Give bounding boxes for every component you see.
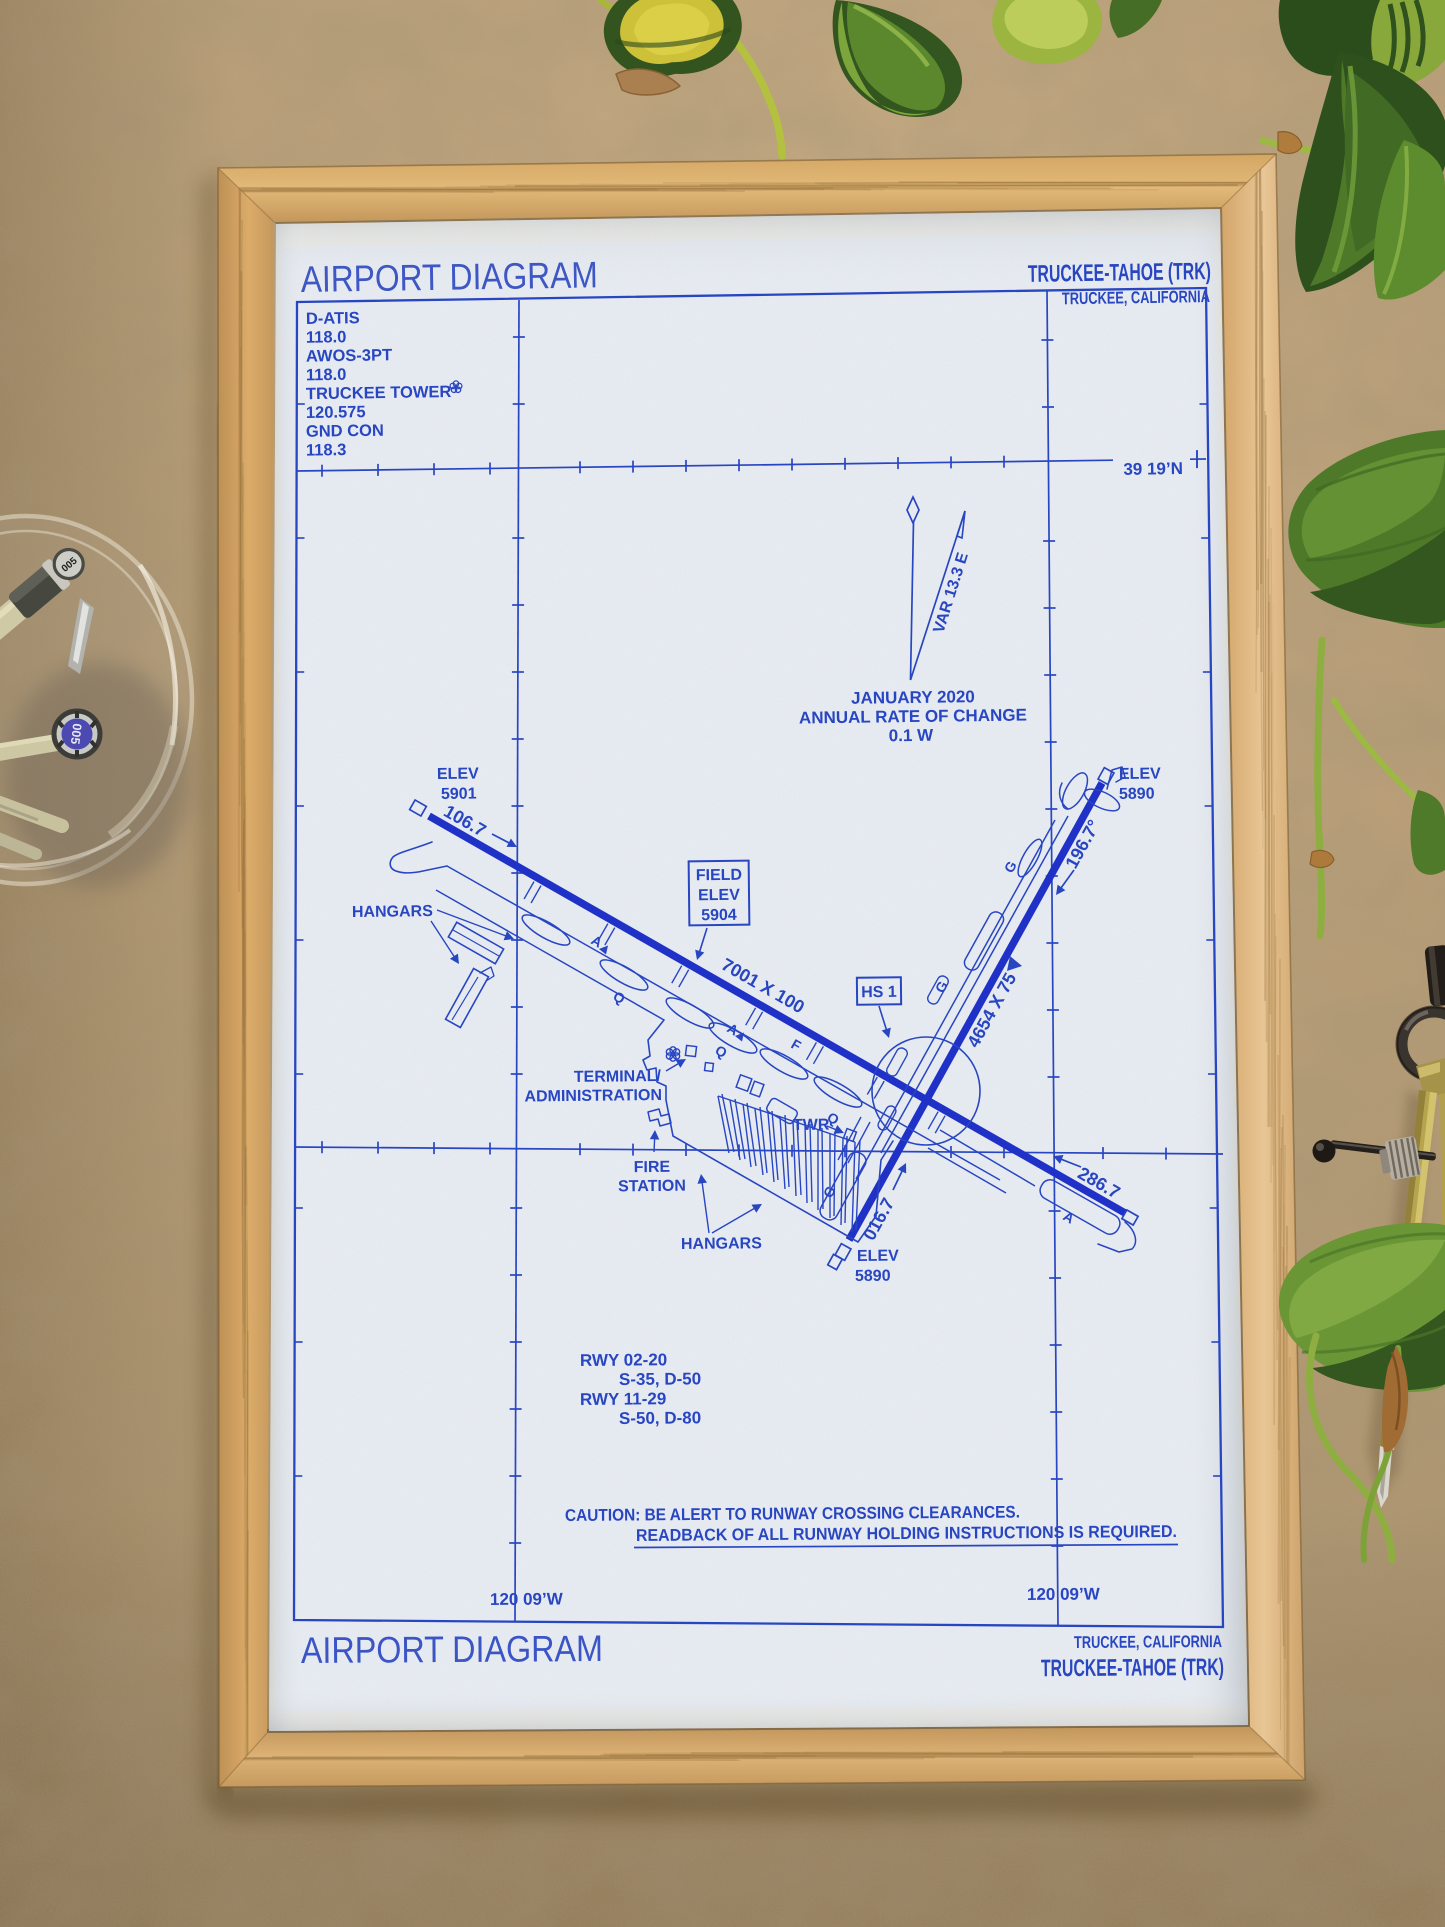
svg-text:ELEV: ELEV — [857, 1248, 899, 1265]
svg-text:AIRPORT DIAGRAM: AIRPORT DIAGRAM — [301, 1628, 603, 1671]
svg-text:ANNUAL RATE OF CHANGE: ANNUAL RATE OF CHANGE — [799, 706, 1027, 728]
svg-text:D-ATIS: D-ATIS — [306, 309, 360, 328]
svg-text:READBACK OF ALL RUNWAY HOLDING: READBACK OF ALL RUNWAY HOLDING INSTRUCTI… — [636, 1522, 1177, 1545]
svg-text:STATION: STATION — [618, 1178, 686, 1196]
svg-text:TWR: TWR — [793, 1117, 830, 1134]
svg-text:GND CON: GND CON — [306, 422, 384, 441]
svg-text:5890: 5890 — [1119, 786, 1155, 803]
svg-text:5901: 5901 — [441, 786, 477, 803]
svg-text:118.3: 118.3 — [306, 441, 347, 460]
svg-text:S-50, D-80: S-50, D-80 — [619, 1408, 701, 1428]
svg-text:5904: 5904 — [701, 907, 737, 924]
svg-text:HANGARS: HANGARS — [352, 903, 433, 921]
svg-text:FIRE: FIRE — [634, 1159, 671, 1176]
svg-text:S-35, D-50: S-35, D-50 — [619, 1369, 701, 1389]
svg-text:TRUCKEE-TAHOE (TRK): TRUCKEE-TAHOE (TRK) — [1028, 258, 1211, 288]
svg-text:AIRPORT DIAGRAM: AIRPORT DIAGRAM — [300, 254, 598, 300]
svg-text:TERMINAL/: TERMINAL/ — [574, 1068, 662, 1086]
svg-text:39 19’N: 39 19’N — [1123, 459, 1183, 479]
svg-text:005: 005 — [68, 723, 84, 745]
svg-text:TRUCKEE-TAHOE (TRK): TRUCKEE-TAHOE (TRK) — [1041, 1654, 1224, 1682]
svg-text:ELEV: ELEV — [698, 887, 740, 904]
svg-text:120.575: 120.575 — [306, 403, 366, 422]
svg-text:AWOS-3PT: AWOS-3PT — [306, 346, 392, 365]
svg-text:JANUARY 2020: JANUARY 2020 — [851, 687, 975, 708]
svg-text:RWY 02-20: RWY 02-20 — [580, 1350, 667, 1370]
svg-text:HS 1: HS 1 — [861, 984, 897, 1001]
svg-text:5890: 5890 — [855, 1268, 891, 1285]
svg-text:120 09’W: 120 09’W — [490, 1589, 564, 1609]
svg-text:CAUTION: BE ALERT TO RUNWAY CR: CAUTION: BE ALERT TO RUNWAY CROSSING CLE… — [565, 1503, 1020, 1525]
svg-text:ELEV: ELEV — [437, 765, 479, 783]
svg-text:TRUCKEE TOWER: TRUCKEE TOWER — [306, 383, 452, 403]
svg-text:FIELD: FIELD — [696, 867, 742, 885]
svg-text:ELEV: ELEV — [1119, 765, 1161, 783]
svg-text:0.1 W: 0.1 W — [889, 726, 935, 746]
svg-text:HANGARS: HANGARS — [681, 1235, 762, 1253]
svg-text:118.0: 118.0 — [306, 328, 347, 347]
svg-text:TRUCKEE, CALIFORNIA: TRUCKEE, CALIFORNIA — [1074, 1632, 1222, 1652]
svg-text:120 09’W: 120 09’W — [1027, 1584, 1101, 1604]
svg-text:ADMINISTRATION: ADMINISTRATION — [524, 1087, 662, 1105]
svg-text:RWY 11-29: RWY 11-29 — [580, 1389, 666, 1409]
svg-text:118.0: 118.0 — [306, 366, 347, 385]
